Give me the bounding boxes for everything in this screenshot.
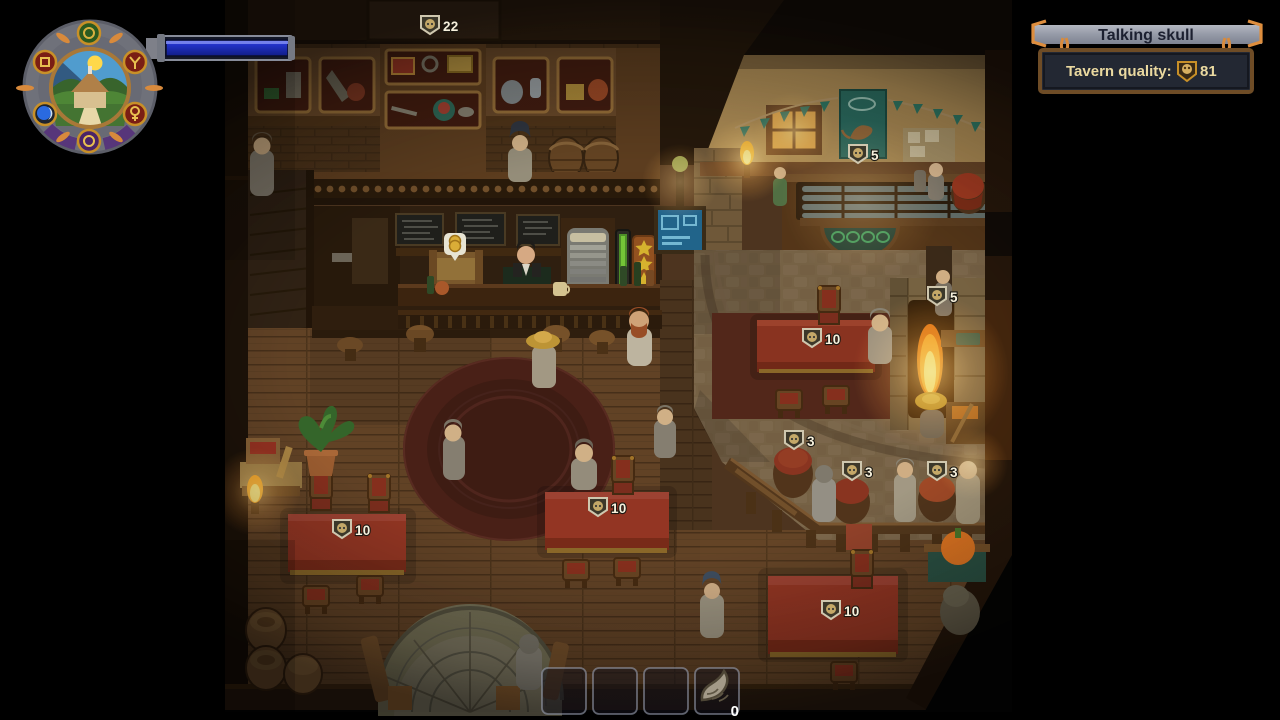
svg-text:3: 3 [950, 465, 958, 480]
svg-text:Talking skull: Talking skull [1098, 27, 1194, 44]
svg-text:10: 10 [825, 332, 841, 347]
svg-text:81: 81 [1200, 63, 1217, 80]
svg-text:22: 22 [443, 19, 459, 34]
svg-text:Tavern quality:: Tavern quality: [1066, 63, 1172, 80]
svg-text:3: 3 [807, 434, 815, 449]
svg-text:10: 10 [355, 523, 371, 538]
svg-text:3: 3 [865, 465, 873, 480]
svg-text:5: 5 [950, 290, 958, 305]
svg-text:5: 5 [871, 148, 879, 163]
svg-text:0: 0 [731, 703, 739, 720]
svg-text:10: 10 [611, 501, 627, 516]
svg-text:10: 10 [844, 604, 860, 619]
